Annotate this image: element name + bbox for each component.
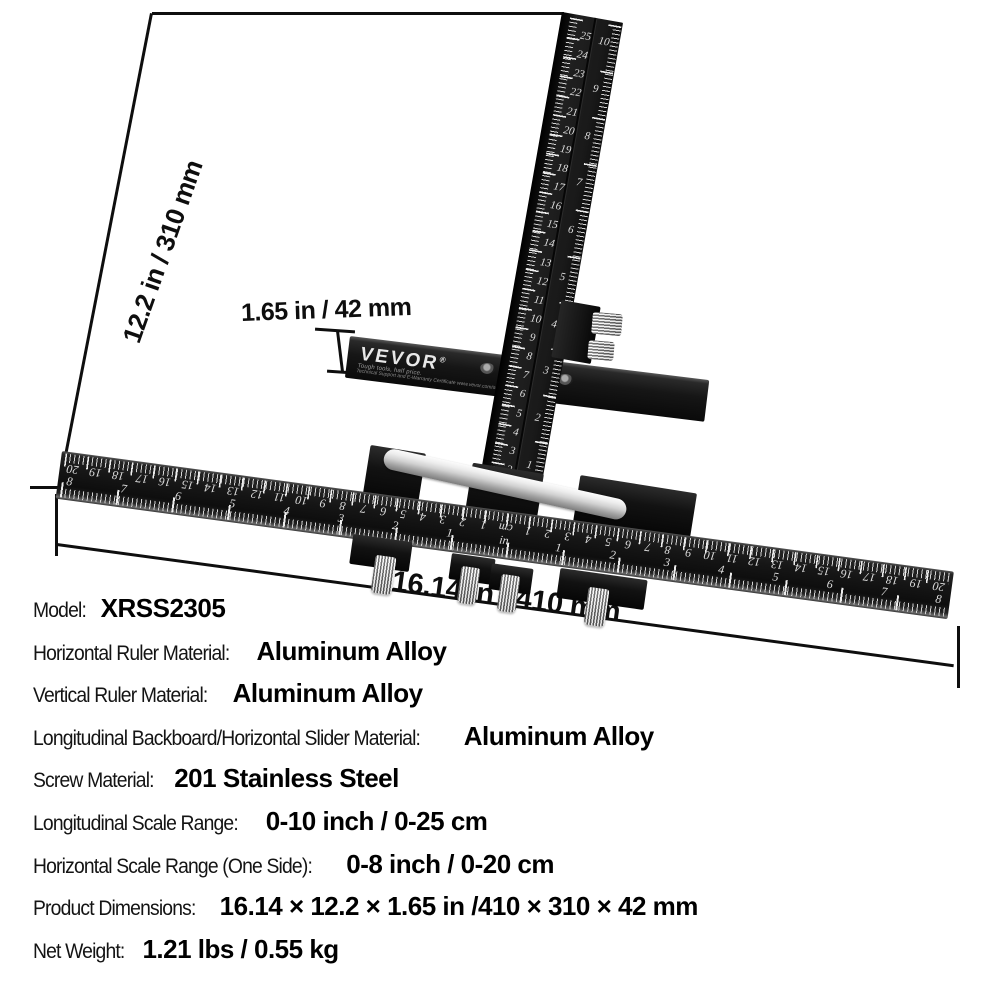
ruler-number: 5	[555, 270, 570, 284]
ruler-number: 8	[521, 349, 538, 363]
spec-row: Horizontal Scale Range (One Side): 0-8 i…	[33, 849, 698, 892]
spec-value: 16.14 × 12.2 × 1.65 in /410 × 310 × 42 m…	[220, 891, 698, 922]
spec-label: Longitudinal Scale Range:	[33, 812, 238, 836]
ruler-number: 11	[531, 293, 548, 307]
spec-label: Vertical Ruler Material:	[33, 684, 207, 708]
ruler-number: 21	[564, 105, 581, 119]
ruler-number: 10	[597, 35, 612, 49]
ruler-number: 5	[511, 406, 528, 420]
registered-mark: ®	[439, 355, 447, 365]
width-dimension-right-tick	[957, 626, 960, 688]
spec-row: Screw Material: 201 Stainless Steel	[33, 763, 698, 806]
product-spec-image: 12.2 in / 310 mm 1.65 in / 42 mm 16.14 i…	[0, 0, 1000, 1000]
ruler-number: 9	[588, 82, 603, 96]
ruler-number: 24	[574, 48, 591, 62]
height-dimension-line	[58, 13, 153, 487]
ruler-number: 19	[557, 142, 574, 156]
spec-value: 201 Stainless Steel	[174, 763, 399, 794]
spec-value: Aluminum Alloy	[464, 721, 654, 752]
spec-row: Net Weight: 1.21 lbs / 0.55 kg	[33, 934, 698, 977]
ruler-number: 6	[563, 223, 578, 237]
ruler-number: 14	[541, 236, 558, 250]
ruler-number: 3	[538, 364, 553, 378]
spec-label: Product Dimensions:	[33, 897, 196, 921]
ruler-number: 8	[580, 129, 595, 143]
ruler-number: 16	[547, 199, 564, 213]
ruler-number: 23	[571, 67, 588, 81]
spec-label: Net Weight:	[33, 940, 124, 964]
ruler-number: 17	[551, 180, 568, 194]
spec-list: Model: XRSS2305 Horizontal Ruler Materia…	[33, 593, 698, 976]
ruler-number: 7	[517, 368, 534, 382]
height-dimension-label: 12.2 in / 310 mm	[107, 128, 220, 374]
spec-value: 0-10 inch / 0-25 cm	[266, 806, 488, 837]
ruler-number: 20	[561, 123, 578, 137]
ruler-number: 13	[537, 255, 554, 269]
spec-row: Vertical Ruler Material: Aluminum Alloy	[33, 678, 698, 721]
vertical-ruler: 2524232221201918171615141312111098765432…	[475, 12, 623, 515]
ruler-number: 2	[530, 411, 545, 425]
spec-value: Aluminum Alloy	[257, 636, 447, 667]
ruler-number: 12	[534, 274, 551, 288]
spec-value: 1.21 lbs / 0.55 kg	[142, 934, 338, 965]
thickness-dimension-line	[336, 331, 344, 373]
ruler-number: 18	[554, 161, 571, 175]
spec-row: Longitudinal Scale Range: 0-10 inch / 0-…	[33, 806, 698, 849]
width-dimension-left-tick	[55, 494, 58, 556]
ruler-number: 22	[567, 86, 584, 100]
ruler-number: 9	[524, 331, 541, 345]
spec-label: Longitudinal Backboard/Horizontal Slider…	[33, 727, 420, 751]
spec-value: 0-8 inch / 0-20 cm	[346, 849, 554, 880]
spec-row: Horizontal Ruler Material: Aluminum Allo…	[33, 636, 698, 679]
thickness-dimension-label: 1.65 in / 42 mm	[241, 293, 412, 328]
thumb-screw	[587, 340, 615, 361]
ruler-number: 6	[514, 387, 531, 401]
spec-label: Model:	[33, 599, 86, 623]
thumb-screw	[591, 312, 623, 337]
ruler-number: 10	[527, 312, 544, 326]
spec-row: Product Dimensions: 16.14 × 12.2 × 1.65 …	[33, 891, 698, 934]
height-dimension-extension-line	[152, 12, 564, 15]
spec-label: Screw Material:	[33, 769, 154, 793]
ruler-number: 25	[577, 29, 594, 43]
ruler-number: 3	[504, 444, 521, 458]
spec-value: Aluminum Alloy	[233, 678, 423, 709]
spec-row: Longitudinal Backboard/Horizontal Slider…	[33, 721, 698, 764]
spec-label: Horizontal Ruler Material:	[33, 642, 229, 666]
spec-label: Horizontal Scale Range (One Side):	[33, 855, 312, 879]
spec-row: Model: XRSS2305	[33, 593, 698, 636]
ruler-number: 7	[572, 176, 587, 190]
spec-value: XRSS2305	[101, 593, 226, 624]
ruler-number: 4	[507, 425, 524, 439]
ruler-number: 15	[544, 218, 561, 232]
